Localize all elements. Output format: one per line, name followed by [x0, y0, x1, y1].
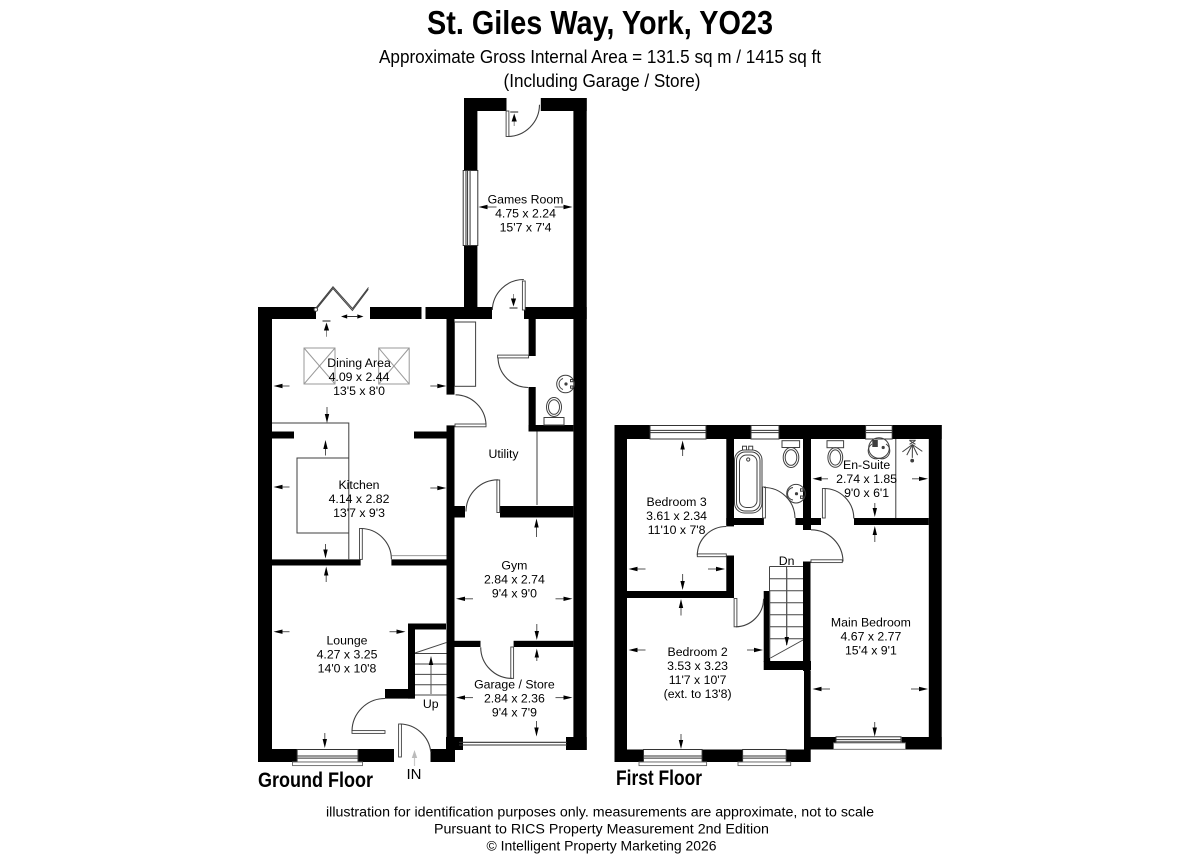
svg-text:13'5 x 8'0: 13'5 x 8'0 — [333, 384, 385, 398]
svg-text:IN: IN — [407, 766, 422, 783]
svg-text:Main Bedroom: Main Bedroom — [831, 616, 911, 630]
svg-text:(Including Garage / Store): (Including Garage / Store) — [504, 70, 701, 91]
svg-text:Games Room: Games Room — [488, 193, 564, 207]
svg-text:Dn: Dn — [779, 554, 795, 568]
svg-text:Kitchen: Kitchen — [338, 478, 379, 492]
svg-text:Garage / Store: Garage / Store — [474, 678, 555, 692]
svg-text:15'4 x 9'1: 15'4 x 9'1 — [845, 644, 897, 658]
svg-text:Approximate Gross Internal Are: Approximate Gross Internal Area = 131.5 … — [379, 46, 821, 67]
svg-text:Bedroom 3: Bedroom 3 — [647, 495, 707, 509]
svg-text:2.84 x 2.36: 2.84 x 2.36 — [484, 692, 545, 706]
svg-text:illustration for identificatio: illustration for identification purposes… — [326, 805, 874, 820]
svg-text:11'7 x 10'7: 11'7 x 10'7 — [669, 673, 727, 687]
svg-text:Lounge: Lounge — [326, 633, 367, 647]
svg-text:Bedroom 2: Bedroom 2 — [668, 645, 728, 659]
svg-text:Gym: Gym — [501, 559, 527, 573]
svg-text:(ext. to 13'8): (ext. to 13'8) — [664, 687, 732, 701]
svg-text:Dining Area: Dining Area — [327, 356, 391, 370]
svg-text:4.75 x 2.24: 4.75 x 2.24 — [495, 207, 556, 221]
svg-text:St. Giles Way, York, YO23: St. Giles Way, York, YO23 — [427, 4, 773, 41]
svg-text:14'0 x 10'8: 14'0 x 10'8 — [318, 661, 377, 675]
svg-text:Ground Floor: Ground Floor — [258, 769, 373, 792]
svg-text:En-Suite: En-Suite — [843, 458, 890, 472]
svg-text:15'7 x 7'4: 15'7 x 7'4 — [500, 221, 552, 235]
svg-text:11'10 x 7'8: 11'10 x 7'8 — [648, 523, 706, 537]
svg-text:4.67 x 2.77: 4.67 x 2.77 — [840, 630, 901, 644]
svg-text:4.09 x 2.44: 4.09 x 2.44 — [329, 370, 390, 384]
svg-text:9'4 x 7'9: 9'4 x 7'9 — [492, 706, 537, 720]
svg-text:3.61 x 2.34: 3.61 x 2.34 — [646, 509, 707, 523]
svg-text:First Floor: First Floor — [616, 767, 702, 790]
svg-text:9'0 x 6'1: 9'0 x 6'1 — [844, 486, 889, 500]
svg-text:2.74 x 1.85: 2.74 x 1.85 — [836, 472, 897, 486]
svg-text:Utility: Utility — [488, 447, 519, 461]
svg-text:4.27 x 3.25: 4.27 x 3.25 — [317, 647, 378, 661]
svg-text:3.53 x 3.23: 3.53 x 3.23 — [667, 659, 728, 673]
svg-text:9'4 x 9'0: 9'4 x 9'0 — [492, 587, 537, 601]
svg-text:Pursuant to RICS Property Meas: Pursuant to RICS Property Measurement 2n… — [434, 822, 769, 837]
svg-text:4.14 x 2.82: 4.14 x 2.82 — [329, 492, 390, 506]
svg-text:Up: Up — [423, 697, 439, 711]
svg-text:© Intelligent Property Marketi: © Intelligent Property Marketing 2026 — [487, 839, 717, 854]
svg-text:2.84 x 2.74: 2.84 x 2.74 — [484, 573, 545, 587]
svg-text:13'7 x 9'3: 13'7 x 9'3 — [333, 506, 385, 520]
